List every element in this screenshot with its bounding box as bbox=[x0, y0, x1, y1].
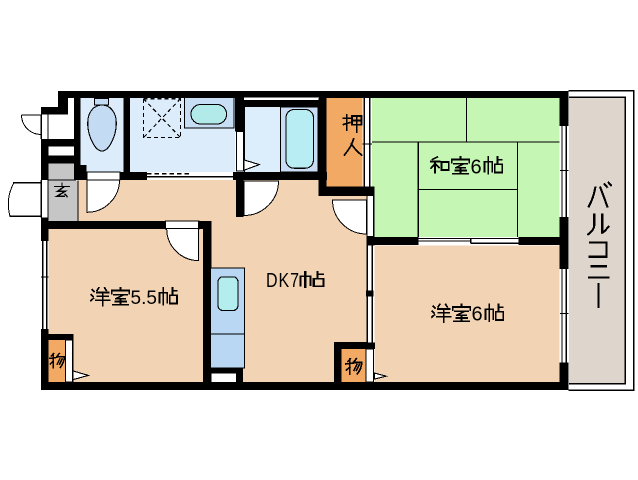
svg-text:5.5: 5.5 bbox=[131, 288, 157, 309]
svg-text:6: 6 bbox=[471, 157, 482, 179]
svg-text:6: 6 bbox=[472, 304, 483, 326]
svg-text:DK7: DK7 bbox=[266, 269, 300, 291]
